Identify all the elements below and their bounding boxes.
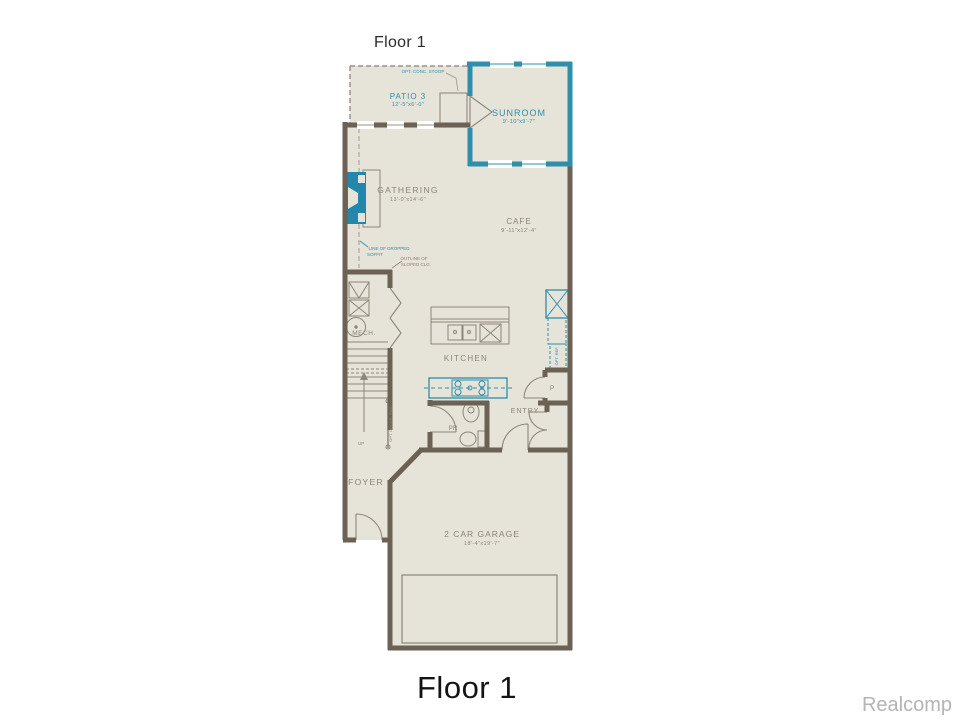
pantry-label: P xyxy=(550,385,554,392)
garage-label: 2 CAR GARAGE xyxy=(444,529,520,539)
stoop-note: OPT. CONC. STOOP xyxy=(402,69,445,74)
floor-label-bottom: Floor 1 xyxy=(0,670,934,706)
cafe-label: CAFE xyxy=(506,217,531,226)
cafe-dims: 9'-11"x12'-4" xyxy=(501,228,537,234)
sunroom-dims: 9'-10"x9'-7" xyxy=(503,119,536,125)
patio-label: PATIO 3 xyxy=(390,92,427,101)
foyer-label: FOYER xyxy=(348,477,384,487)
realcomp-watermark: Realcomp xyxy=(862,694,952,717)
patio-dims: 12'-5"x6'-0" xyxy=(392,102,425,108)
soffit-note-1: LINE OF DROPPED xyxy=(368,246,410,251)
mech-label: MECH. xyxy=(352,330,375,337)
sunroom-label: SUNROOM xyxy=(492,108,546,118)
kitchen-label: KITCHEN xyxy=(444,354,488,363)
front-windows xyxy=(357,121,434,129)
floor-plan-drawing: PATIO 3 12'-5"x6'-0" SUNROOM 9'-10"x9'-7… xyxy=(0,0,960,720)
up-label: UP xyxy=(358,441,364,446)
gathering-label: GATHERING xyxy=(377,185,439,195)
rail-label: OPT. DECOR. RAIL xyxy=(388,405,393,441)
pr-label: PR xyxy=(448,425,457,432)
opt-ref-label: OPT. REF. xyxy=(554,347,559,366)
floorplan-page: Floor 1 xyxy=(0,0,960,720)
entry-label: ENTRY xyxy=(511,408,540,415)
gathering-dims: 13'-0"x14'-6" xyxy=(390,197,426,203)
garage-dims: 18'-4"x19'-7" xyxy=(464,541,500,547)
sloped-note-1: OUTLINE OF xyxy=(400,256,427,261)
sloped-note-2: SLOPED CLG. xyxy=(401,262,431,267)
soffit-note-2: SOFFIT xyxy=(367,252,383,257)
